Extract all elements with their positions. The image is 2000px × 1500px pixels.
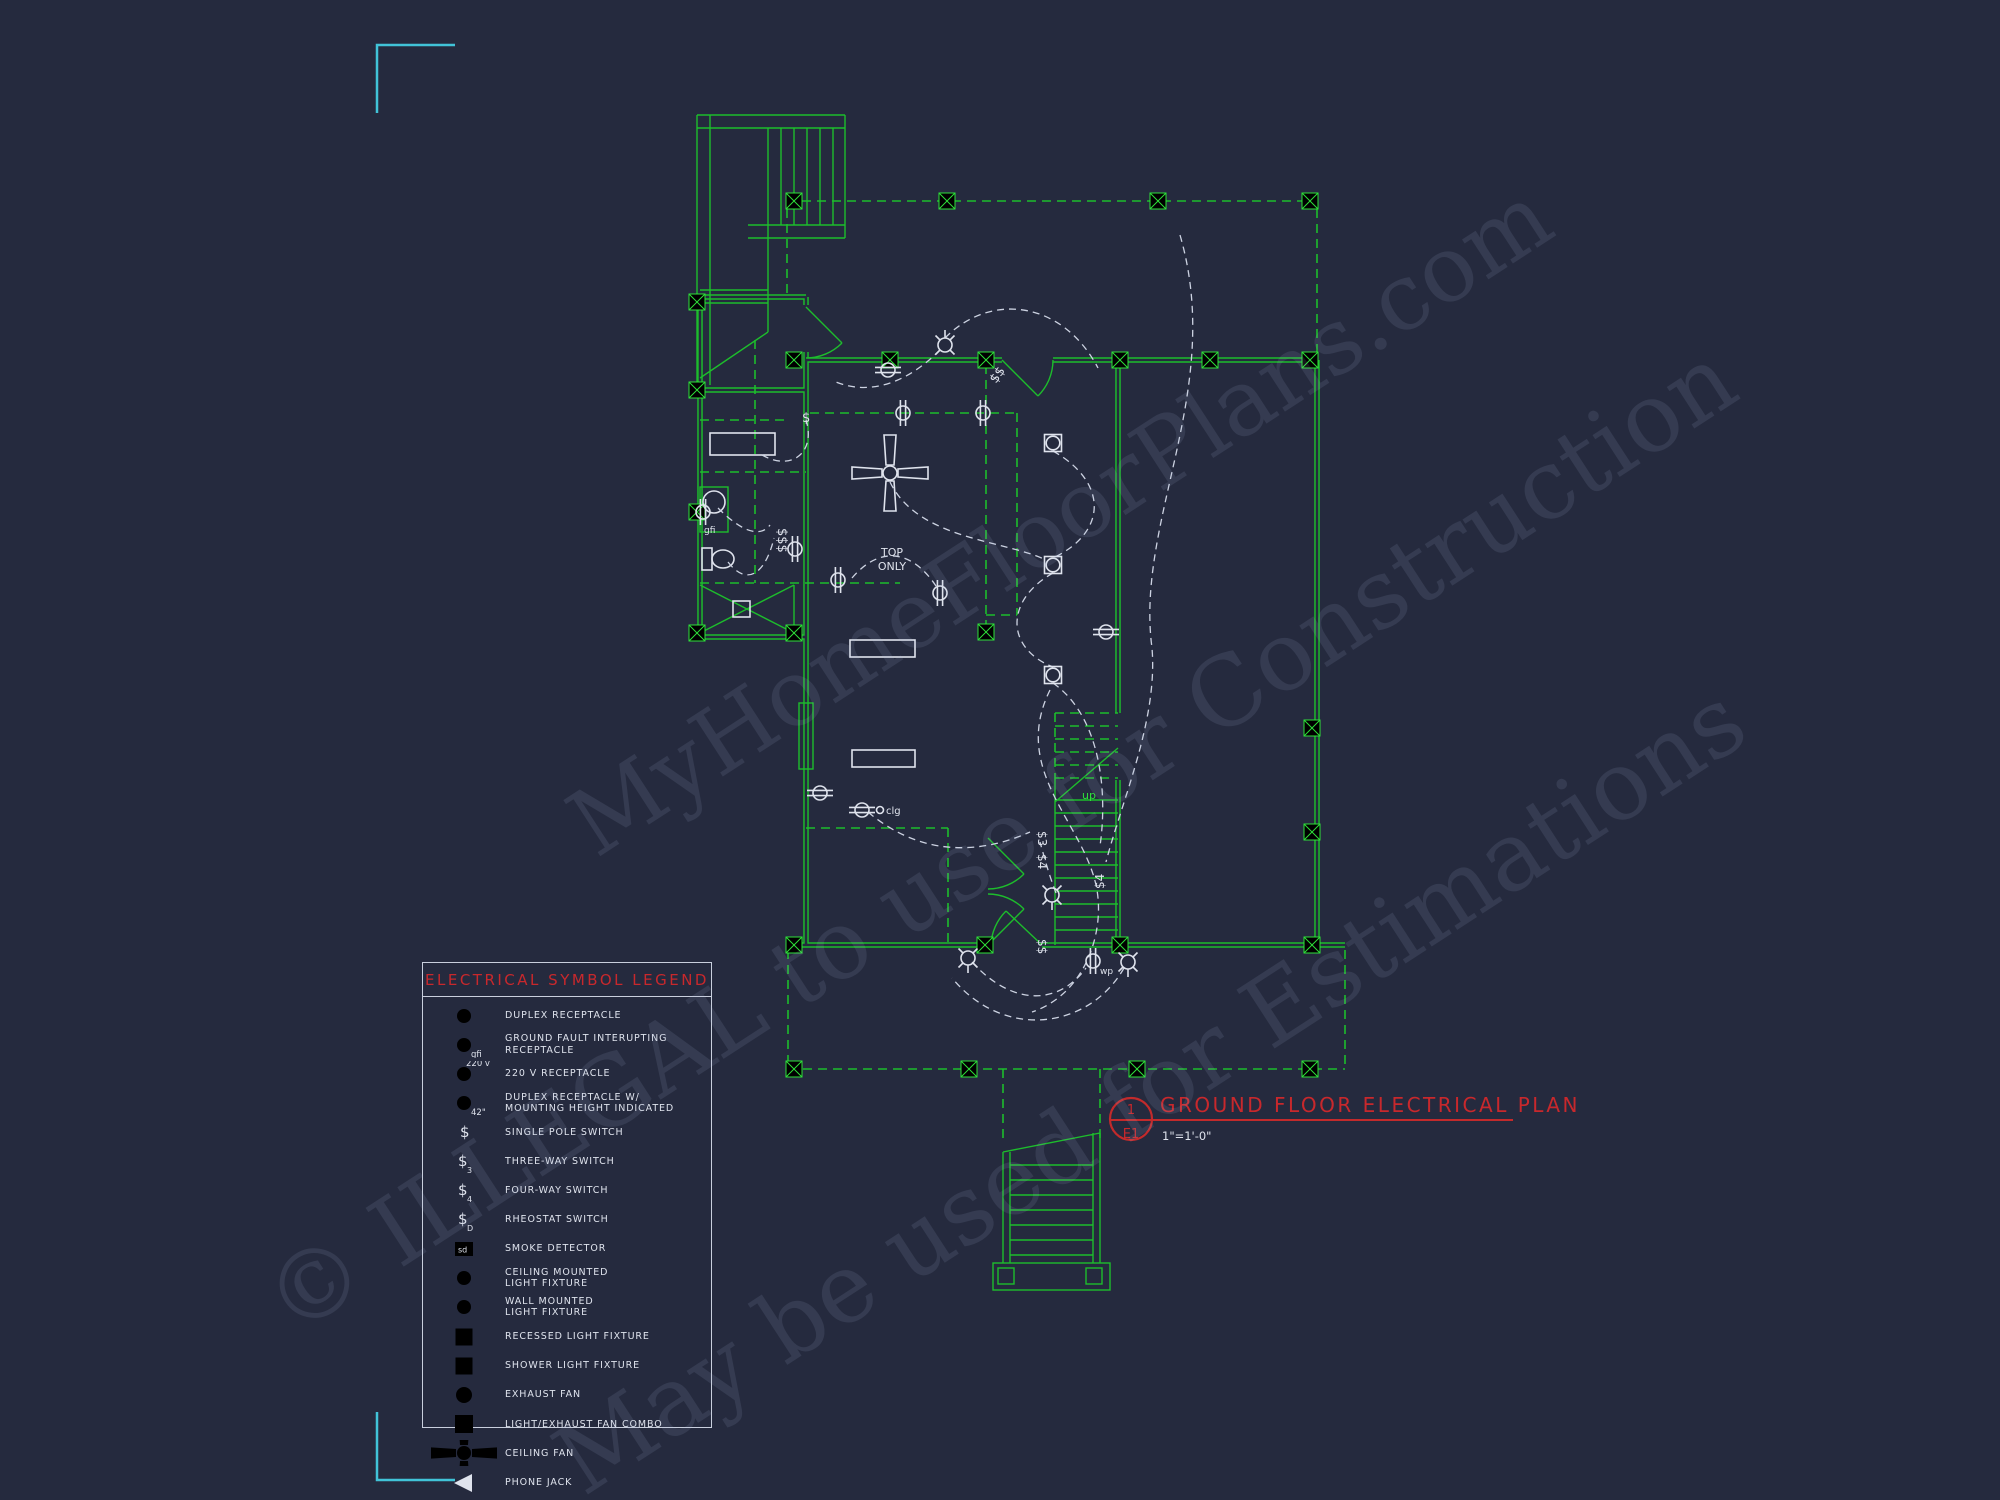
duplex-receptacle-icon [831,567,845,593]
legend-symbol-icon [423,1236,505,1262]
legend-row: WALL MOUNTED LIGHT FIXTURE [423,1293,711,1322]
legend-symbol-icon [423,1090,505,1116]
legend-symbol-icon [423,1207,505,1233]
legend-symbol-icon [423,1353,505,1379]
walls [700,297,1345,945]
legend-label: SINGLE POLE SWITCH [505,1127,624,1138]
legend-row: SINGLE POLE SWITCH [423,1118,711,1147]
legend-row: RECESSED LIGHT FIXTURE [423,1322,711,1351]
recessed-light-icon [1045,557,1062,574]
fluorescent-fixture [850,640,915,657]
legend-label: EXHAUST FAN [505,1389,581,1400]
duplex-receptacle-icon [807,786,833,800]
legend-symbol-icon [423,1324,505,1350]
clg-dot-icon [877,807,884,814]
legend-symbol-icon [423,1440,505,1466]
legend-row: SHOWER LIGHT FIXTURE [423,1351,711,1380]
exterior-stair-bottom [993,1133,1110,1290]
wall-light-icon [959,949,978,974]
legend-label: SMOKE DETECTOR [505,1243,606,1254]
legend-label: DUPLEX RECEPTACLE [505,1010,621,1021]
electrical-symbol-legend: ELECTRICAL SYMBOL LEGEND DUPLEX RECEPTAC… [422,962,712,1428]
recessed-light-icon [1045,667,1062,684]
legend-symbol-icon [423,1382,505,1408]
duplex-receptacle-icon [1093,625,1119,639]
legend-symbol-icon [423,1294,505,1320]
plan-scale: 1"=1'-0" [1162,1129,1211,1143]
fluorescent-fixture [852,750,915,767]
doors [806,307,1053,945]
wp-label: wp [1100,967,1113,977]
clg-label: clg [886,806,901,817]
legend-label: SHOWER LIGHT FIXTURE [505,1360,640,1371]
switch-triple: $$$ [774,528,789,553]
gfi-label: gfi [704,526,715,536]
legend-symbol-icon [423,1119,505,1145]
legend-row: 220 V RECEPTACLE [423,1059,711,1088]
legend-label: DUPLEX RECEPTACLE W/ MOUNTING HEIGHT IND… [505,1092,674,1115]
legend-rows: DUPLEX RECEPTACLE GROUND FAULT INTERUPTI… [423,997,711,1500]
fluorescent-fixture [710,433,775,455]
legend-symbol-icon [423,1411,505,1437]
four-way-switch: $4 [1035,854,1049,869]
legend-label: FOUR-WAY SWITCH [505,1185,608,1196]
legend-row: CEILING MOUNTED LIGHT FIXTURE [423,1264,711,1293]
sheet-ref: E1 [1123,1127,1140,1142]
wall-light-icon [936,330,955,355]
single-switch: $ [802,411,810,426]
legend-label: GROUND FAULT INTERUPTING RECEPTACLE [505,1033,667,1056]
toilet-tank [702,548,712,570]
drawing-sheet: gfi 220 v 42" $ $ 3 $ 4 $ D [0,0,2000,1500]
title-block: 1 E1 GROUND FLOOR ELECTRICAL PLAN 1"=1'-… [1110,1093,1580,1143]
svg-text:ONLY: ONLY [878,560,907,573]
three-way-switch: $3 [1035,831,1049,846]
legend-row: PHONE JACK [423,1468,711,1497]
four-way-switch: $4 [1093,874,1107,889]
wp-receptacle-icon [1086,948,1100,974]
legend-label: WALL MOUNTED LIGHT FIXTURE [505,1296,594,1319]
legend-row: SMOKE DETECTOR [423,1235,711,1264]
floor-plan-canvas: gfi 220 v 42" $ $ 3 $ 4 $ D [0,0,2000,1500]
legend-label: RHEOSTAT SWITCH [505,1214,609,1225]
electrical-symbols [696,330,1138,977]
legend-row: GROUND FAULT INTERUPTING RECEPTACLE [423,1030,711,1059]
wall-light-icon [1043,886,1062,911]
legend-symbol-icon [423,1003,505,1029]
legend-symbol-icon [423,1032,505,1058]
legend-label: THREE-WAY SWITCH [505,1156,615,1167]
exterior-stair-top [697,115,845,385]
legend-symbol-icon [423,1178,505,1204]
legend-symbol-icon [423,1265,505,1291]
legend-row: CEILING FAN [423,1439,711,1468]
corner-bracket-top-left [377,45,455,113]
legend-row: FOUR-WAY SWITCH [423,1176,711,1205]
legend-symbol-icon [423,1149,505,1175]
legend-label: RECESSED LIGHT FIXTURE [505,1331,650,1342]
detail-number: 1 [1127,1103,1135,1118]
legend-label: CEILING MOUNTED LIGHT FIXTURE [505,1267,608,1290]
ceiling-fan-icon [852,435,928,511]
legend-symbol-icon [423,1470,505,1496]
deck-outline-dashed [788,201,1345,1140]
switch-pair: $$ [1035,939,1049,954]
legend-row: THREE-WAY SWITCH [423,1147,711,1176]
up-label: up [1082,789,1096,802]
legend-row: LIGHT/EXHAUST FAN COMBO [423,1410,711,1439]
legend-row: DUPLEX RECEPTACLE W/ MOUNTING HEIGHT IND… [423,1089,711,1118]
legend-title: ELECTRICAL SYMBOL LEGEND [423,963,711,997]
legend-label: CEILING FAN [505,1448,574,1459]
legend-label: 220 V RECEPTACLE [505,1068,610,1079]
legend-row: DUPLEX RECEPTACLE [423,1001,711,1030]
duplex-receptacle-icon [788,536,802,562]
legend-label: LIGHT/EXHAUST FAN COMBO [505,1419,663,1430]
legend-row: RHEOSTAT SWITCH [423,1205,711,1234]
top-only-label: TOP [880,546,903,559]
legend-row: EXHAUST FAN [423,1380,711,1409]
recessed-light-icon [1045,435,1062,452]
legend-label: PHONE JACK [505,1477,572,1488]
plan-title: GROUND FLOOR ELECTRICAL PLAN [1160,1093,1580,1117]
legend-symbol-icon [423,1061,505,1087]
interior-stair: up [1055,713,1118,945]
